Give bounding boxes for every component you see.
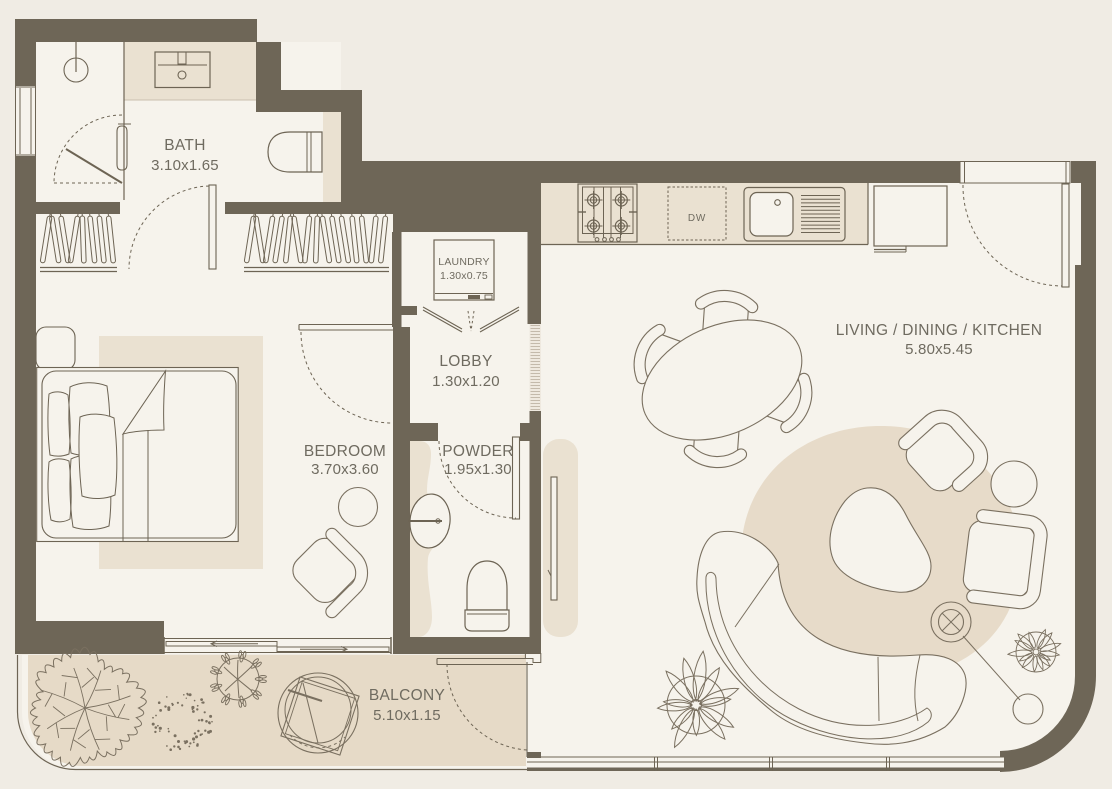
- svg-text:DW: DW: [688, 213, 706, 224]
- svg-text:LOBBY: LOBBY: [439, 353, 492, 370]
- svg-text:5.80x5.45: 5.80x5.45: [905, 341, 973, 358]
- svg-text:LIVING / DINING / KITCHEN: LIVING / DINING / KITCHEN: [836, 322, 1042, 339]
- svg-text:LAUNDRY: LAUNDRY: [438, 256, 489, 268]
- svg-text:BALCONY: BALCONY: [369, 687, 445, 704]
- svg-text:5.10x1.15: 5.10x1.15: [373, 707, 441, 724]
- svg-text:1.30x1.20: 1.30x1.20: [432, 373, 500, 390]
- svg-text:1.95x1.30: 1.95x1.30: [444, 461, 512, 478]
- svg-text:3.10x1.65: 3.10x1.65: [151, 157, 219, 174]
- svg-text:POWDER: POWDER: [442, 443, 514, 460]
- svg-text:BATH: BATH: [164, 137, 205, 154]
- svg-text:1.30x0.75: 1.30x0.75: [440, 270, 488, 282]
- svg-text:3.70x3.60: 3.70x3.60: [311, 461, 379, 478]
- svg-text:BEDROOM: BEDROOM: [304, 443, 386, 460]
